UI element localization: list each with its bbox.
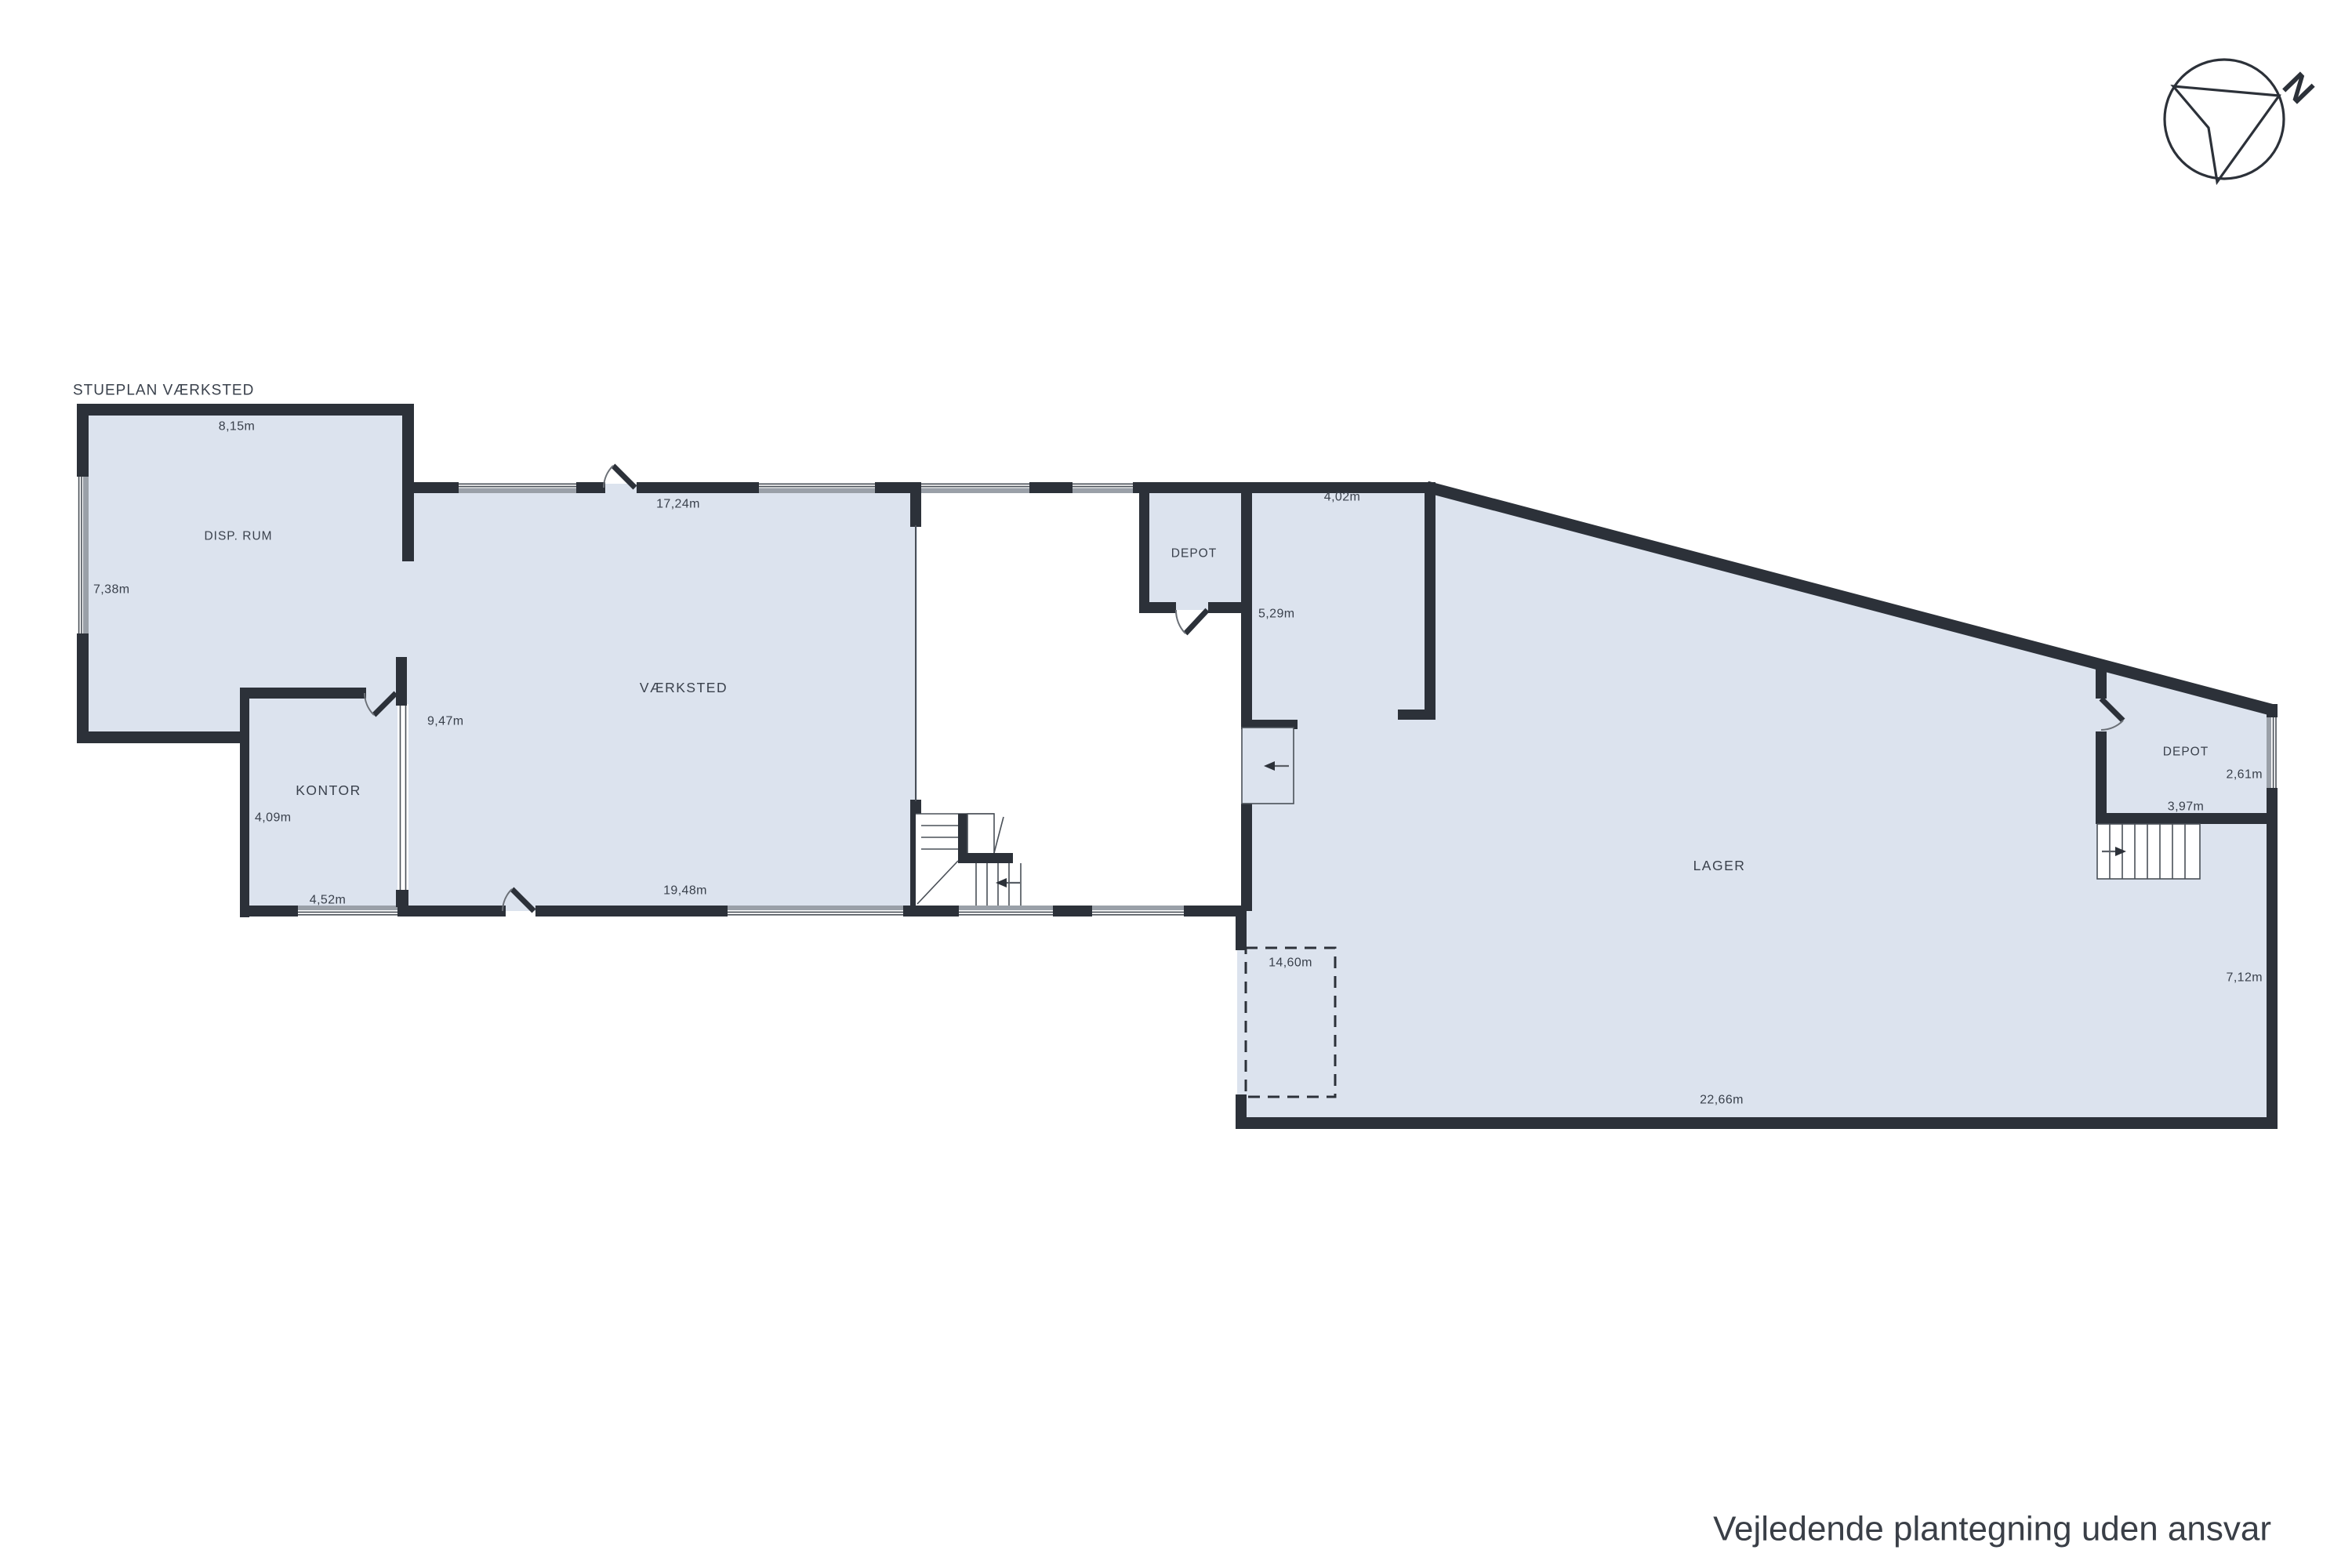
stair-hall <box>916 814 1022 906</box>
room-label-lager: LAGER <box>1693 858 1746 873</box>
window-depot-east <box>2267 717 2278 788</box>
dim-kontor-bottom: 4,52m <box>310 894 346 907</box>
window-disprum-west <box>77 461 89 637</box>
dim-lager-right: 7,12m <box>2227 971 2263 985</box>
window-bottom-1 <box>298 906 397 916</box>
dim-disprum-top: 8,15m <box>219 420 255 434</box>
room-label-depot-oest: DEPOT <box>2163 746 2209 759</box>
floorplan-canvas: N STUEPLAN VÆRKSTED DISP. RUM 8,15m 7,38… <box>0 0 2352 1568</box>
disclaimer-text: Vejledende plantegning uden ansvar <box>1713 1510 2271 1548</box>
window-top-2 <box>759 482 875 493</box>
door-depot-vest <box>1176 610 1207 633</box>
floorplan-page: N STUEPLAN VÆRKSTED DISP. RUM 8,15m 7,38… <box>0 0 2352 1568</box>
window-top-3 <box>920 482 1029 493</box>
dim-lager-gate: 14,60m <box>1269 956 1312 970</box>
dim-lager-section-top: 4,02m <box>1324 491 1360 504</box>
dim-lager-bottom: 22,66m <box>1700 1094 1744 1107</box>
dim-vaerksted-left: 9,47m <box>427 715 463 728</box>
room-label-vaerksted: VÆRKSTED <box>640 680 728 695</box>
dim-depot-oest-right: 2,61m <box>2227 768 2263 782</box>
room-label-depot-vest: DEPOT <box>1171 547 1217 561</box>
compass: N <box>2165 60 2322 182</box>
dim-kontor-left: 4,09m <box>255 811 291 825</box>
fill-disprum-vaerksted-kontor <box>78 404 917 911</box>
window-top-1 <box>459 482 576 493</box>
dim-vaerksted-bottom: 19,48m <box>663 884 707 898</box>
dim-disprum-left: 7,38m <box>93 583 129 597</box>
dim-lager-section-left: 5,29m <box>1258 608 1294 621</box>
window-bottom-4 <box>1092 906 1184 916</box>
room-label-kontor: KONTOR <box>296 782 361 798</box>
stair-depot-oest <box>2097 824 2200 879</box>
window-bottom-3 <box>959 906 1053 916</box>
dim-depot-oest-bottom: 3,97m <box>2168 800 2204 814</box>
window-kontor-partition <box>397 704 408 892</box>
plan-title: STUEPLAN VÆRKSTED <box>73 383 254 399</box>
compass-circle <box>2165 60 2284 179</box>
window-top-4 <box>1073 482 1133 493</box>
lager-west-opening <box>1242 728 1294 804</box>
window-bottom-2 <box>728 906 903 916</box>
room-label-disp-rum: DISP. RUM <box>204 530 272 543</box>
dim-vaerksted-top: 17,24m <box>656 498 700 511</box>
